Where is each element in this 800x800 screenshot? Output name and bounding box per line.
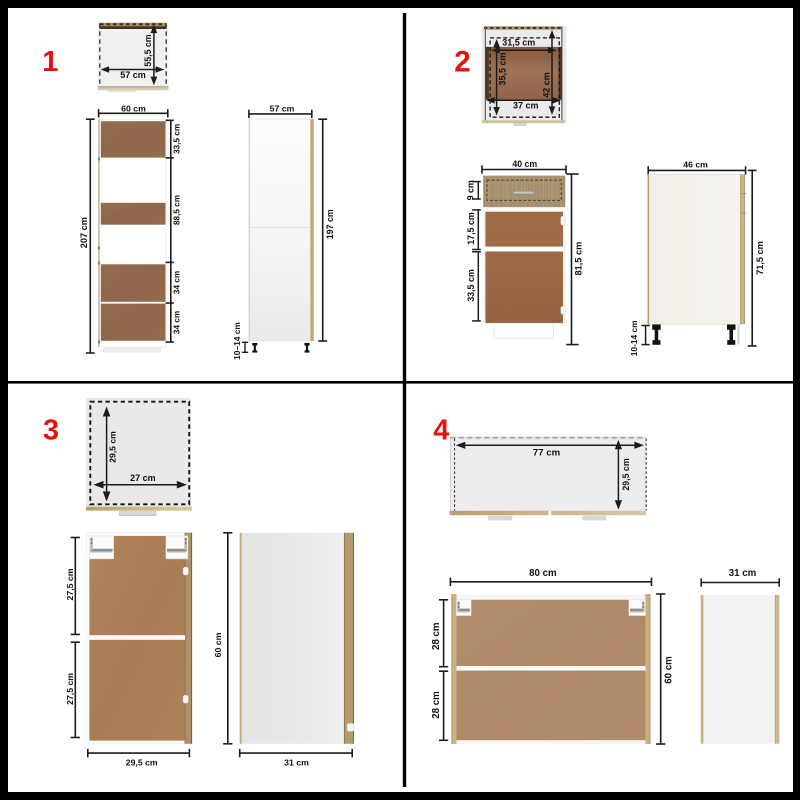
svg-text:57 cm: 57 cm — [120, 70, 146, 80]
svg-text:33,5 cm: 33,5 cm — [466, 269, 476, 302]
svg-text:10-14 cm: 10-14 cm — [629, 320, 639, 356]
svg-text:28 cm: 28 cm — [431, 691, 442, 719]
svg-text:81,5 cm: 81,5 cm — [573, 242, 583, 276]
svg-text:88,5 cm: 88,5 cm — [173, 195, 182, 225]
svg-text:42 cm: 42 cm — [541, 72, 551, 98]
svg-text:9 cm: 9 cm — [466, 180, 476, 200]
svg-text:197 cm: 197 cm — [325, 209, 335, 239]
svg-text:207 cm: 207 cm — [79, 217, 89, 248]
svg-text:29,5 cm: 29,5 cm — [126, 758, 158, 768]
svg-text:60 cm: 60 cm — [213, 632, 223, 657]
svg-text:33,5 cm: 33,5 cm — [173, 124, 182, 154]
svg-text:34 cm: 34 cm — [173, 311, 182, 334]
svg-text:29,5 cm: 29,5 cm — [107, 431, 117, 463]
svg-text:4: 4 — [433, 414, 449, 446]
svg-text:1: 1 — [42, 46, 58, 78]
svg-text:17,5 cm: 17,5 cm — [466, 212, 476, 245]
svg-text:2: 2 — [454, 46, 470, 79]
svg-text:31,5 cm: 31,5 cm — [502, 37, 535, 47]
svg-text:28 cm: 28 cm — [431, 622, 442, 650]
svg-text:27 cm: 27 cm — [130, 473, 156, 483]
svg-text:60 cm: 60 cm — [121, 103, 146, 113]
svg-text:31 cm: 31 cm — [284, 758, 309, 768]
svg-text:29,5 cm: 29,5 cm — [621, 458, 631, 490]
svg-text:80 cm: 80 cm — [529, 568, 557, 579]
svg-text:31 cm: 31 cm — [729, 568, 757, 579]
svg-text:10–14 cm: 10–14 cm — [232, 322, 242, 360]
svg-text:46 cm: 46 cm — [683, 160, 708, 170]
svg-text:34 cm: 34 cm — [173, 271, 182, 294]
svg-text:3: 3 — [43, 414, 59, 446]
svg-text:27,5 cm: 27,5 cm — [65, 673, 75, 705]
svg-text:35,5 cm: 35,5 cm — [497, 52, 507, 85]
svg-text:77 cm: 77 cm — [533, 448, 560, 459]
svg-text:40 cm: 40 cm — [512, 159, 537, 169]
svg-text:57 cm: 57 cm — [270, 103, 295, 113]
svg-text:71,5 cm: 71,5 cm — [755, 241, 765, 275]
svg-text:27,5 cm: 27,5 cm — [65, 568, 75, 600]
svg-text:55,5 cm: 55,5 cm — [143, 34, 153, 66]
svg-text:37 cm: 37 cm — [513, 101, 539, 111]
svg-text:60 cm: 60 cm — [663, 656, 674, 684]
